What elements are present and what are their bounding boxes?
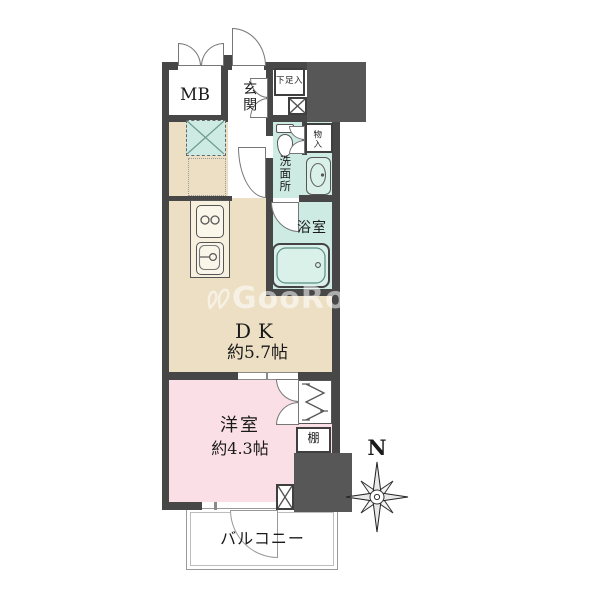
wall [162, 62, 169, 510]
wall [162, 502, 202, 510]
kitchen-sink-icon [196, 242, 224, 275]
mb-label: MB [170, 86, 220, 106]
x-hatch-icon [187, 121, 224, 154]
storage-label: 物入 [311, 127, 321, 151]
mb-door-right-arc [201, 43, 224, 66]
wall [298, 372, 340, 380]
genkan-label: 玄関 [241, 74, 257, 120]
dk-label: DK [200, 320, 315, 343]
mb-door-left-arc [178, 43, 201, 66]
balcony-label: バルコニー [190, 530, 335, 548]
western-room-label: 洋室 [180, 416, 300, 437]
bathroom-label: 浴室 [292, 220, 332, 236]
wall [221, 62, 228, 122]
wall [162, 372, 238, 380]
sink-basin-icon [197, 243, 222, 273]
sliding-door-tick [266, 372, 268, 380]
watermark: GooRooM [204, 281, 399, 316]
hatched-pipe-space [186, 120, 226, 156]
refrigerator-space [188, 158, 226, 196]
washbasin-icon [306, 157, 331, 195]
stove-burners-icon [197, 206, 222, 235]
structural-block-top-right [307, 62, 366, 122]
stove-icon [196, 205, 224, 238]
dk-door-arc [238, 147, 266, 198]
watermark-text: GooRooM [232, 281, 399, 316]
dk-size-label: 約5.7帖 [200, 344, 315, 364]
watermark-logo-icon [204, 284, 232, 314]
wall [162, 62, 178, 70]
pipe-space-box-top [288, 97, 307, 115]
washroom-label: 洗面所 [278, 149, 291, 199]
window-frame-tick [214, 502, 217, 510]
bathtub-inner-icon [274, 245, 328, 286]
shoe-storage-label: 下足入 [274, 77, 305, 87]
entrance-door-arc [232, 28, 266, 66]
floor-plan: MB 玄関 下足入 物入 洗面所 浴室 DK 約5.7帖 洋室 約4.3帖 棚 … [0, 0, 600, 600]
x-mark-icon [278, 486, 292, 508]
hanger-pipe-icon [299, 381, 331, 423]
wall [266, 122, 273, 136]
washbasin-bowl-icon [307, 158, 329, 193]
shelf-label: 棚 [296, 432, 331, 446]
closet-hanger-area [298, 380, 332, 424]
compass-rose-icon [340, 440, 416, 540]
x-mark-icon [290, 99, 305, 113]
pipe-space-box-bottom [276, 484, 294, 510]
western-room-size-label: 約4.3帖 [180, 440, 300, 458]
